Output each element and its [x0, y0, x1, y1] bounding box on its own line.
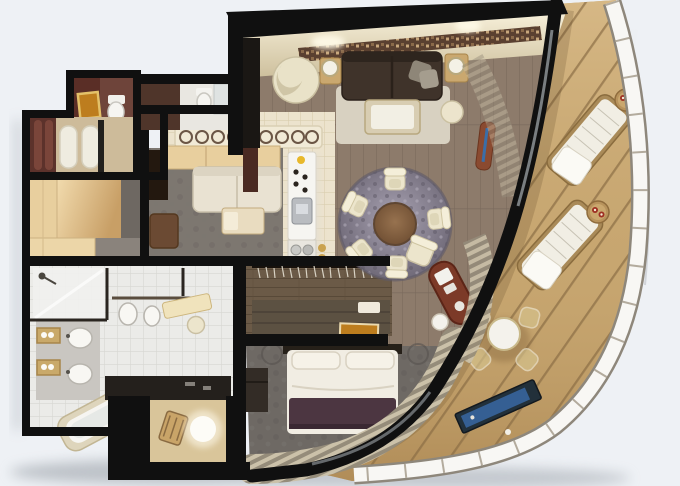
- side-table-left: [320, 58, 341, 84]
- coffee-table: [365, 100, 420, 134]
- den-side-chair: [150, 214, 178, 248]
- toilet: [119, 303, 137, 325]
- den-coffee-table: [222, 208, 264, 234]
- gold-painting: [78, 92, 101, 119]
- sphere-lamp: [190, 416, 216, 442]
- bedside-shelf: [246, 368, 268, 412]
- pillow-1: [292, 352, 340, 369]
- wall-cluster-top: [66, 70, 141, 78]
- pillow-2: [346, 352, 394, 369]
- wall-bedroom-top: [246, 334, 388, 346]
- floorplan-image: [0, 0, 680, 486]
- wall-den-left: [140, 130, 149, 266]
- den-cabinet: [166, 146, 280, 169]
- floorplan-svg: [0, 0, 680, 486]
- wall-bath-bottom: [22, 427, 116, 436]
- lamp-right: [448, 58, 464, 74]
- window-nook: [150, 400, 228, 462]
- drink-table-2: [587, 201, 609, 223]
- towel-shelf-1: [37, 328, 60, 343]
- sofa-pillow-2: [419, 69, 440, 90]
- den: [148, 146, 283, 262]
- folded-towels: [358, 302, 380, 313]
- lamp-left: [322, 60, 338, 76]
- vanity-stool: [188, 317, 205, 334]
- robe-1: [60, 126, 77, 168]
- wall-bath-top: [22, 256, 390, 266]
- wardrobe-lit-panel: [55, 178, 121, 238]
- dining-table: [374, 203, 416, 245]
- bidet: [144, 306, 160, 326]
- balcony-table: [488, 318, 520, 350]
- floor-lamp: [432, 314, 448, 330]
- dark-sofa: [342, 52, 442, 100]
- shower: [33, 268, 105, 320]
- tv-panel: [243, 38, 260, 148]
- flower: [297, 156, 305, 164]
- towel-shelf-2: [37, 360, 60, 375]
- robe-2: [82, 126, 99, 168]
- ottoman: [441, 101, 463, 123]
- foyer-wardrobe: [29, 178, 143, 262]
- bar-counter: [288, 152, 316, 240]
- den-sofa: [193, 167, 281, 212]
- dining-chair-right: [427, 206, 452, 231]
- dressing-robes: [29, 117, 133, 172]
- double-sink-vanity: [36, 320, 100, 400]
- wall-left-long: [22, 110, 30, 434]
- ceiling-light-1: [311, 35, 345, 49]
- dining-chair-top: [384, 168, 406, 190]
